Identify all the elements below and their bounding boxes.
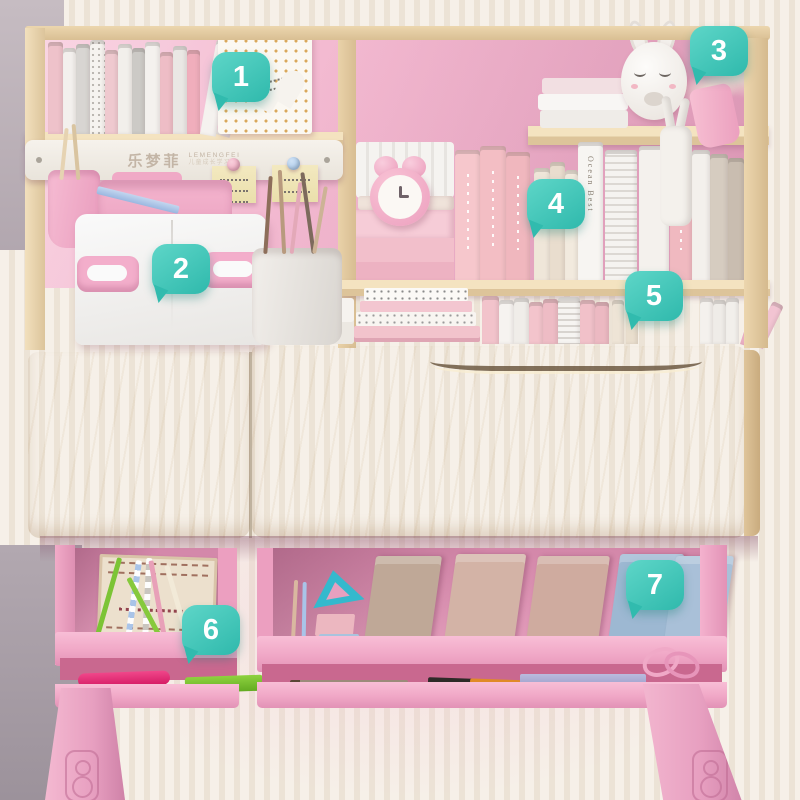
white-book-stack bbox=[538, 78, 628, 128]
callout-badge-5[interactable]: 5 bbox=[625, 271, 683, 321]
desk-side-edge bbox=[744, 350, 760, 536]
striped-book bbox=[605, 150, 637, 286]
book-spine bbox=[132, 48, 145, 134]
book-spine bbox=[726, 298, 739, 344]
push-pin-blue bbox=[287, 157, 300, 170]
callout-badge-7[interactable]: 7 bbox=[626, 560, 684, 610]
book-spine bbox=[700, 298, 713, 344]
emboss-bunny-head bbox=[703, 760, 719, 776]
handwriting-scribble bbox=[280, 173, 310, 181]
pencil-cup bbox=[252, 248, 342, 345]
book-spine bbox=[529, 302, 543, 344]
ruler-cutout bbox=[323, 580, 349, 600]
striped-book bbox=[558, 297, 580, 344]
book-spine bbox=[728, 158, 744, 286]
spine-lettering bbox=[517, 176, 519, 250]
pink-book bbox=[480, 146, 506, 286]
book-spine-dotted bbox=[90, 40, 105, 134]
pink-notebook bbox=[360, 301, 472, 312]
bunny-closed-eye bbox=[659, 68, 671, 77]
callout-badge-3[interactable]: 3 bbox=[690, 26, 748, 76]
callout-badge-4[interactable]: 4 bbox=[527, 179, 585, 229]
book-spine bbox=[543, 299, 558, 344]
groove-highlight bbox=[432, 357, 700, 374]
pink-base-book bbox=[354, 326, 480, 342]
book-spine bbox=[612, 300, 624, 344]
book-spine bbox=[105, 50, 118, 134]
book-spine bbox=[580, 300, 595, 344]
rail-screw bbox=[324, 157, 330, 163]
drawer-wall bbox=[700, 545, 727, 645]
book-spine bbox=[499, 300, 514, 344]
emboss-bunny-body bbox=[72, 776, 93, 798]
desk-top-left bbox=[28, 352, 250, 538]
book-spine bbox=[160, 52, 173, 134]
dotted-notebook-stack bbox=[354, 288, 480, 344]
spine-lettering bbox=[492, 171, 494, 248]
hutch-right-panel bbox=[744, 38, 768, 348]
strap-hole bbox=[213, 261, 253, 277]
brand-name-cn: 乐梦菲 bbox=[128, 150, 182, 171]
stacked-book bbox=[540, 110, 628, 128]
alarm-clock bbox=[370, 156, 430, 230]
emboss-bunny-body bbox=[700, 776, 722, 798]
stacked-book bbox=[538, 94, 628, 110]
book-spine bbox=[48, 42, 63, 134]
pink-book bbox=[506, 152, 530, 286]
stacked-box bbox=[356, 238, 454, 262]
pink-book bbox=[455, 150, 480, 286]
clock-face bbox=[378, 175, 422, 219]
stand-strap-left bbox=[77, 256, 139, 292]
book-spine bbox=[173, 46, 187, 134]
book-spine bbox=[713, 300, 726, 344]
dotted-notebook bbox=[364, 288, 468, 301]
callout-badge-2[interactable]: 2 bbox=[152, 244, 210, 294]
dotted-notebook bbox=[356, 312, 476, 326]
push-pin-pink bbox=[227, 158, 240, 171]
leg-bunny-emboss bbox=[692, 750, 728, 800]
figurine-body bbox=[660, 126, 692, 226]
book-spine bbox=[710, 154, 728, 286]
callout-badge-6[interactable]: 6 bbox=[182, 605, 240, 655]
hutch-left-panel bbox=[25, 28, 45, 350]
book-spine-text: Ocean Best bbox=[586, 156, 595, 213]
callout-badge-1[interactable]: 1 bbox=[212, 52, 270, 102]
book-spine bbox=[187, 50, 200, 134]
spine-lettering bbox=[467, 174, 469, 249]
book-spine bbox=[482, 296, 499, 344]
emboss-bunny-head bbox=[75, 760, 91, 776]
desk-seam bbox=[249, 352, 252, 538]
hutch-top-board bbox=[25, 26, 770, 40]
book-spine bbox=[595, 302, 609, 344]
notebook-ornament bbox=[108, 561, 208, 576]
bunny-figurine bbox=[650, 96, 704, 236]
book-spine bbox=[76, 44, 90, 134]
clock-body bbox=[370, 168, 430, 226]
bunny-blush bbox=[669, 84, 676, 89]
desk-top-right bbox=[252, 346, 746, 538]
book-spine bbox=[118, 44, 132, 134]
book-spine bbox=[514, 298, 529, 344]
book-spine bbox=[63, 48, 76, 134]
stacked-book bbox=[542, 78, 624, 94]
bunny-closed-eye bbox=[634, 68, 646, 77]
strap-hole bbox=[87, 265, 127, 281]
leg-bunny-emboss bbox=[65, 750, 99, 800]
clock-hour-hand bbox=[400, 195, 409, 198]
drawer-wall bbox=[257, 548, 273, 644]
product-photo-kids-desk: Ocean Best bbox=[0, 0, 800, 800]
pink-eraser bbox=[315, 614, 355, 636]
rail-screw bbox=[36, 157, 42, 163]
book-spine bbox=[145, 42, 160, 134]
bunny-blush bbox=[631, 84, 638, 89]
